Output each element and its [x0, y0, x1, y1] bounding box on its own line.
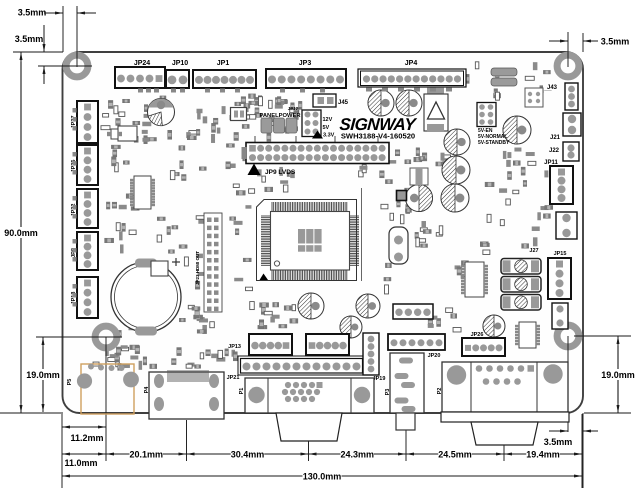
svg-text:JP15: JP15	[554, 251, 567, 257]
svg-text:P1: P1	[239, 388, 245, 395]
svg-text:19.4mm: 19.4mm	[526, 450, 560, 460]
svg-text:11.0mm: 11.0mm	[64, 458, 97, 468]
svg-text:12V: 12V	[323, 117, 333, 123]
svg-text:J22: J22	[549, 148, 560, 154]
svg-text:JP10: JP10	[172, 60, 188, 67]
svg-text:JP4: JP4	[405, 60, 418, 67]
svg-text:3.5mm: 3.5mm	[18, 8, 47, 18]
svg-text:5V: 5V	[323, 125, 330, 131]
svg-text:19.0mm: 19.0mm	[601, 370, 635, 380]
svg-text:JP24: JP24	[134, 60, 150, 67]
svg-text:JP23 HDMI OUT: JP23 HDMI OUT	[195, 251, 200, 285]
svg-text:JP13: JP13	[228, 344, 241, 350]
svg-text:J45: J45	[338, 100, 349, 106]
svg-text:P2: P2	[437, 388, 443, 395]
svg-text:90.0mm: 90.0mm	[4, 228, 38, 238]
svg-text:3.5mm: 3.5mm	[15, 34, 44, 44]
svg-text:11.2mm: 11.2mm	[70, 433, 103, 443]
svg-text:3.5mm: 3.5mm	[601, 37, 630, 47]
svg-text:J27: J27	[529, 248, 538, 254]
svg-text:3.3V: 3.3V	[323, 133, 335, 139]
svg-text:J43: J43	[547, 85, 558, 91]
svg-text:P4: P4	[144, 386, 150, 394]
svg-text:30.4mm: 30.4mm	[231, 450, 265, 460]
svg-text:J21: J21	[550, 135, 561, 141]
svg-text:5V-STANDBY: 5V-STANDBY	[478, 140, 510, 146]
svg-text:JP12: JP12	[288, 106, 299, 111]
svg-text:JP11: JP11	[544, 160, 558, 166]
svg-text:20.1mm: 20.1mm	[129, 450, 163, 460]
svg-text:130.0mm: 130.0mm	[303, 472, 342, 482]
svg-text:P3: P3	[385, 389, 391, 396]
svg-text:24.5mm: 24.5mm	[438, 450, 472, 460]
svg-text:19.0mm: 19.0mm	[26, 370, 60, 380]
svg-text:24.3mm: 24.3mm	[340, 450, 374, 460]
svg-text:JP26: JP26	[471, 332, 484, 338]
svg-text:JP21: JP21	[227, 375, 240, 381]
svg-text:JP1: JP1	[217, 60, 230, 67]
svg-text:P5: P5	[67, 379, 73, 386]
svg-text:JP3: JP3	[299, 60, 312, 67]
svg-text:3.5mm: 3.5mm	[544, 437, 573, 447]
svg-text:JP9 LVDS: JP9 LVDS	[265, 169, 296, 176]
svg-text:JP20: JP20	[428, 353, 441, 359]
